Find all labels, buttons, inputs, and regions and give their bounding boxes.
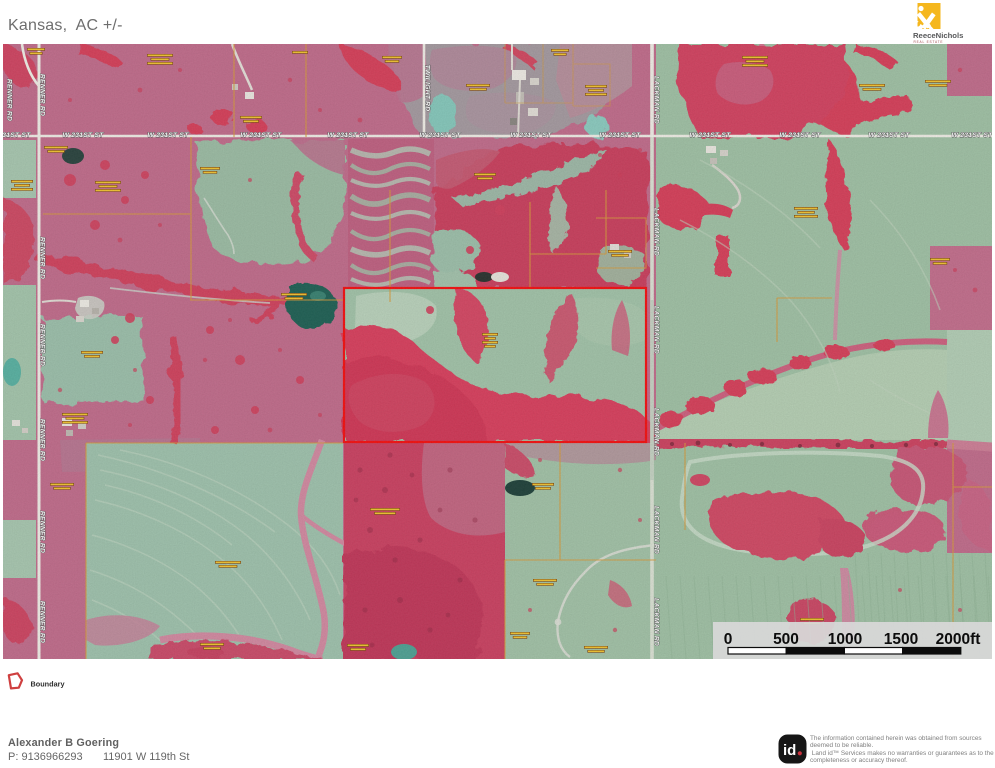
svg-text:2000ft: 2000ft <box>936 631 981 648</box>
svg-text:1500: 1500 <box>884 631 918 648</box>
svg-text:1000: 1000 <box>828 631 862 648</box>
svg-text:ReeceNichols: ReeceNichols <box>913 31 963 40</box>
svg-text:Boundary: Boundary <box>31 680 66 689</box>
svg-text:0: 0 <box>724 631 733 648</box>
svg-text:500: 500 <box>773 631 799 648</box>
svg-text:id: id <box>783 742 796 759</box>
